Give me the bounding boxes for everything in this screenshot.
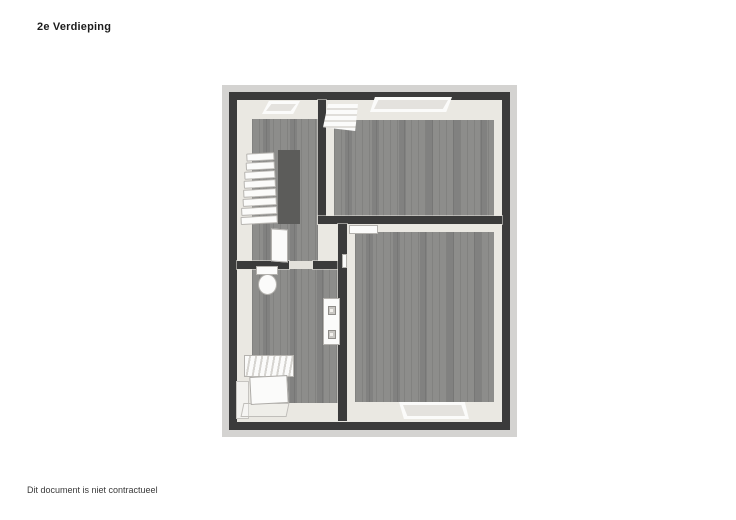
- skylight-glass: [266, 104, 296, 111]
- bathroom-doorway: [289, 261, 313, 269]
- cabinet: [236, 355, 296, 419]
- socket-panel: [323, 298, 340, 345]
- floorplan-interior: [237, 100, 502, 422]
- outer-wall: [229, 92, 510, 430]
- wall-under-top-bedroom: [318, 216, 502, 224]
- skylight-landing: [262, 101, 300, 114]
- skylight-glass: [374, 100, 448, 109]
- open-door-bathroom: [271, 228, 288, 262]
- cabinet-front: [249, 375, 288, 405]
- toilet-bowl: [258, 274, 277, 295]
- floor-bedroom-top-right: [334, 120, 494, 216]
- door-jamb: [342, 254, 347, 268]
- page-title: 2e Verdieping: [37, 21, 111, 33]
- wall-bathroom-right-segment: [313, 261, 341, 269]
- skylight-bottom-bedroom: [399, 402, 469, 419]
- floorplan-page: 2e Verdieping: [0, 0, 736, 520]
- wall-divider-top: [318, 100, 326, 224]
- staircase: [237, 152, 281, 224]
- floorplan-canvas: [222, 85, 517, 437]
- stair-step: [246, 152, 274, 161]
- socket-icon: [328, 306, 336, 315]
- skylight-top-bedroom: [370, 97, 452, 112]
- stair-step: [245, 161, 275, 171]
- door-panel-bottom-bedroom: [349, 225, 378, 234]
- floor-bedroom-bottom-right: [355, 232, 494, 402]
- skylight-glass: [403, 405, 465, 416]
- cabinet-base: [241, 403, 290, 417]
- socket-icon: [328, 330, 336, 339]
- stair-step: [245, 170, 276, 180]
- stairwell-void: [278, 150, 300, 224]
- disclaimer-text: Dit document is niet contractueel: [27, 485, 158, 495]
- roof-window-top-bedroom: [323, 104, 358, 131]
- cabinet-top: [244, 355, 294, 377]
